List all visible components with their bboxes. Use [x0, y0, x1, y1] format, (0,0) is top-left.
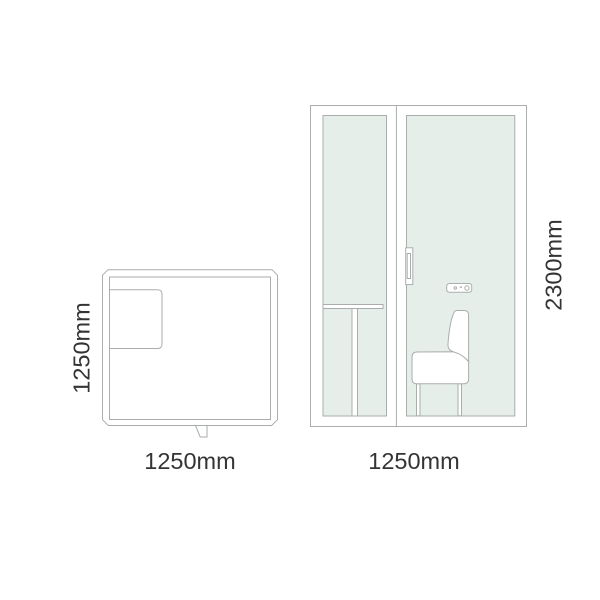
svg-text:1250mm: 1250mm	[68, 302, 94, 393]
svg-text:1250mm: 1250mm	[144, 448, 235, 474]
svg-text:1250mm: 1250mm	[368, 448, 459, 474]
svg-text:2300mm: 2300mm	[541, 219, 567, 310]
